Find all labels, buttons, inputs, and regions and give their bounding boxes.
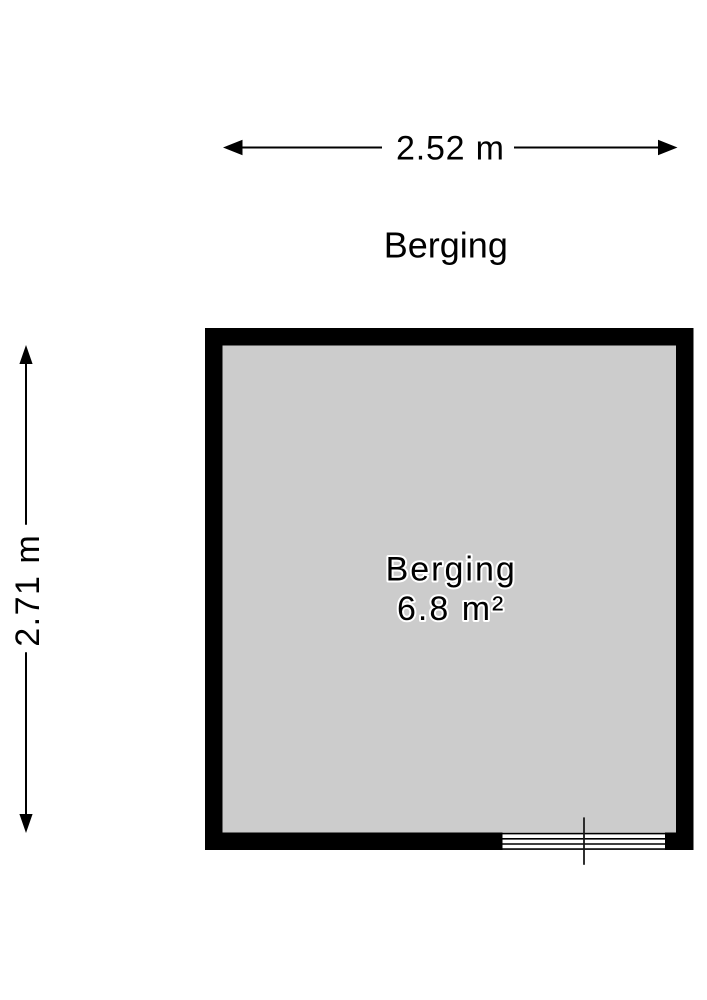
svg-text:6.8 m²: 6.8 m² <box>397 590 505 628</box>
svg-text:2.71 m: 2.71 m <box>9 534 47 647</box>
svg-text:Berging: Berging <box>386 551 517 589</box>
svg-text:Berging: Berging <box>384 225 508 266</box>
svg-text:2.52 m: 2.52 m <box>396 130 505 168</box>
